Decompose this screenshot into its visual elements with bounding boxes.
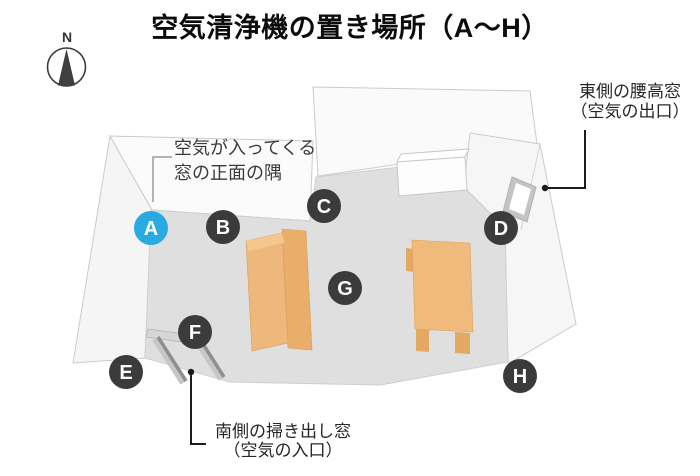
marker-e: E [109,355,143,389]
marker-b: B [206,210,240,244]
inlet-annotation-line2: 窓の正面の隅 [174,161,316,186]
diagram-stage: N [0,0,700,476]
south-window-annotation-line1: 南側の掃き出し窓 [208,422,358,441]
table-top [412,240,473,332]
east-window-annotation-line1: 東側の腰高窓 [566,82,694,102]
south-annotation-dot [188,369,194,375]
marker-c-label: C [317,196,331,218]
east-window-annotation-line2: （空気の出口） [566,102,694,122]
inlet-annotation: 空気が入ってくる 窓の正面の隅 [174,136,316,186]
sofa-seat [246,233,288,351]
marker-g-label: G [337,278,353,300]
sofa [246,229,312,351]
east-annotation-dot [542,185,548,191]
marker-c: C [307,189,341,223]
east-window-annotation: 東側の腰高窓 （空気の出口） [566,82,694,122]
room-diagram: N [0,0,700,476]
table-leg-left [416,329,429,352]
inlet-annotation-line1: 空気が入ってくる [174,136,316,161]
marker-e-label: E [119,362,132,384]
marker-d: D [484,211,518,245]
table-leg-right [455,332,470,354]
marker-b-label: B [216,217,230,239]
south-window-annotation-line2: （空気の入口） [208,441,358,460]
marker-h: H [503,359,537,393]
page-title: 空気清浄機の置き場所（A～H） [0,6,700,45]
marker-f: F [178,315,212,349]
east-annotation-line [547,130,585,188]
marker-d-label: D [494,218,508,240]
marker-a: A [134,211,168,245]
south-annotation-line [191,373,206,444]
alcove-ledge [397,157,467,196]
marker-h-label: H [513,366,527,388]
marker-f-label: F [189,322,201,344]
marker-a-label: A [144,218,158,240]
marker-g: G [328,271,362,305]
south-window-annotation: 南側の掃き出し窓 （空気の入口） [208,422,358,460]
